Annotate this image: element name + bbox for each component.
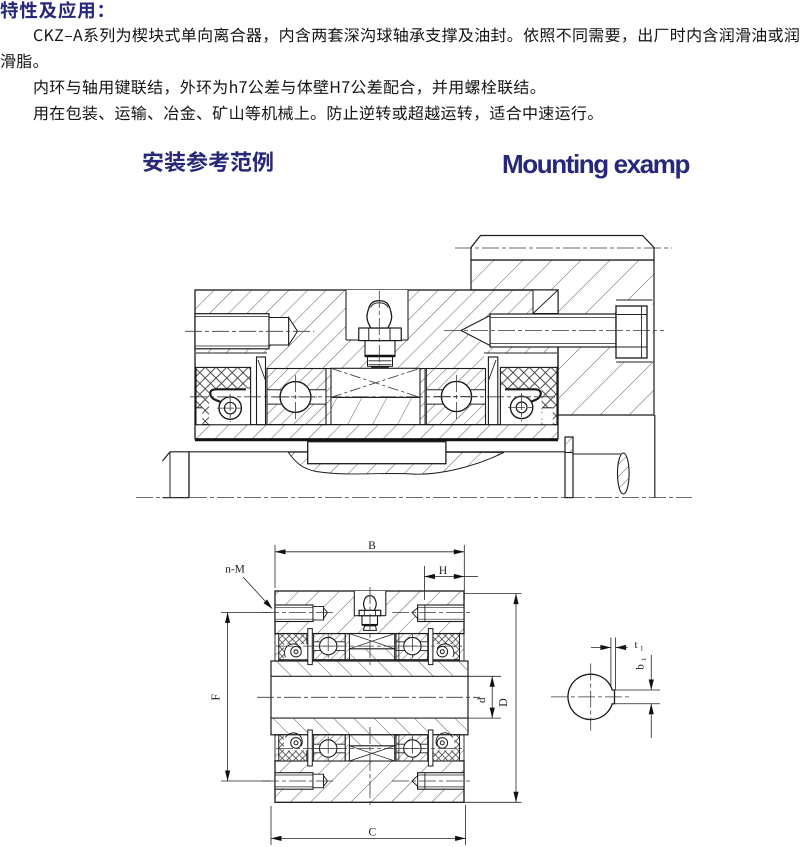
- svg-text:B: B: [368, 540, 376, 552]
- svg-text:D: D: [496, 698, 510, 707]
- svg-text:d: d: [476, 697, 488, 703]
- svg-text:H: H: [439, 565, 447, 577]
- svg-text:n-M: n-M: [225, 564, 245, 576]
- svg-text:1: 1: [640, 657, 648, 661]
- svg-text:F: F: [209, 694, 223, 701]
- svg-text:C: C: [368, 827, 376, 839]
- svg-text:b: b: [635, 664, 647, 670]
- svg-text:1: 1: [640, 645, 644, 653]
- svg-text:t: t: [634, 639, 637, 651]
